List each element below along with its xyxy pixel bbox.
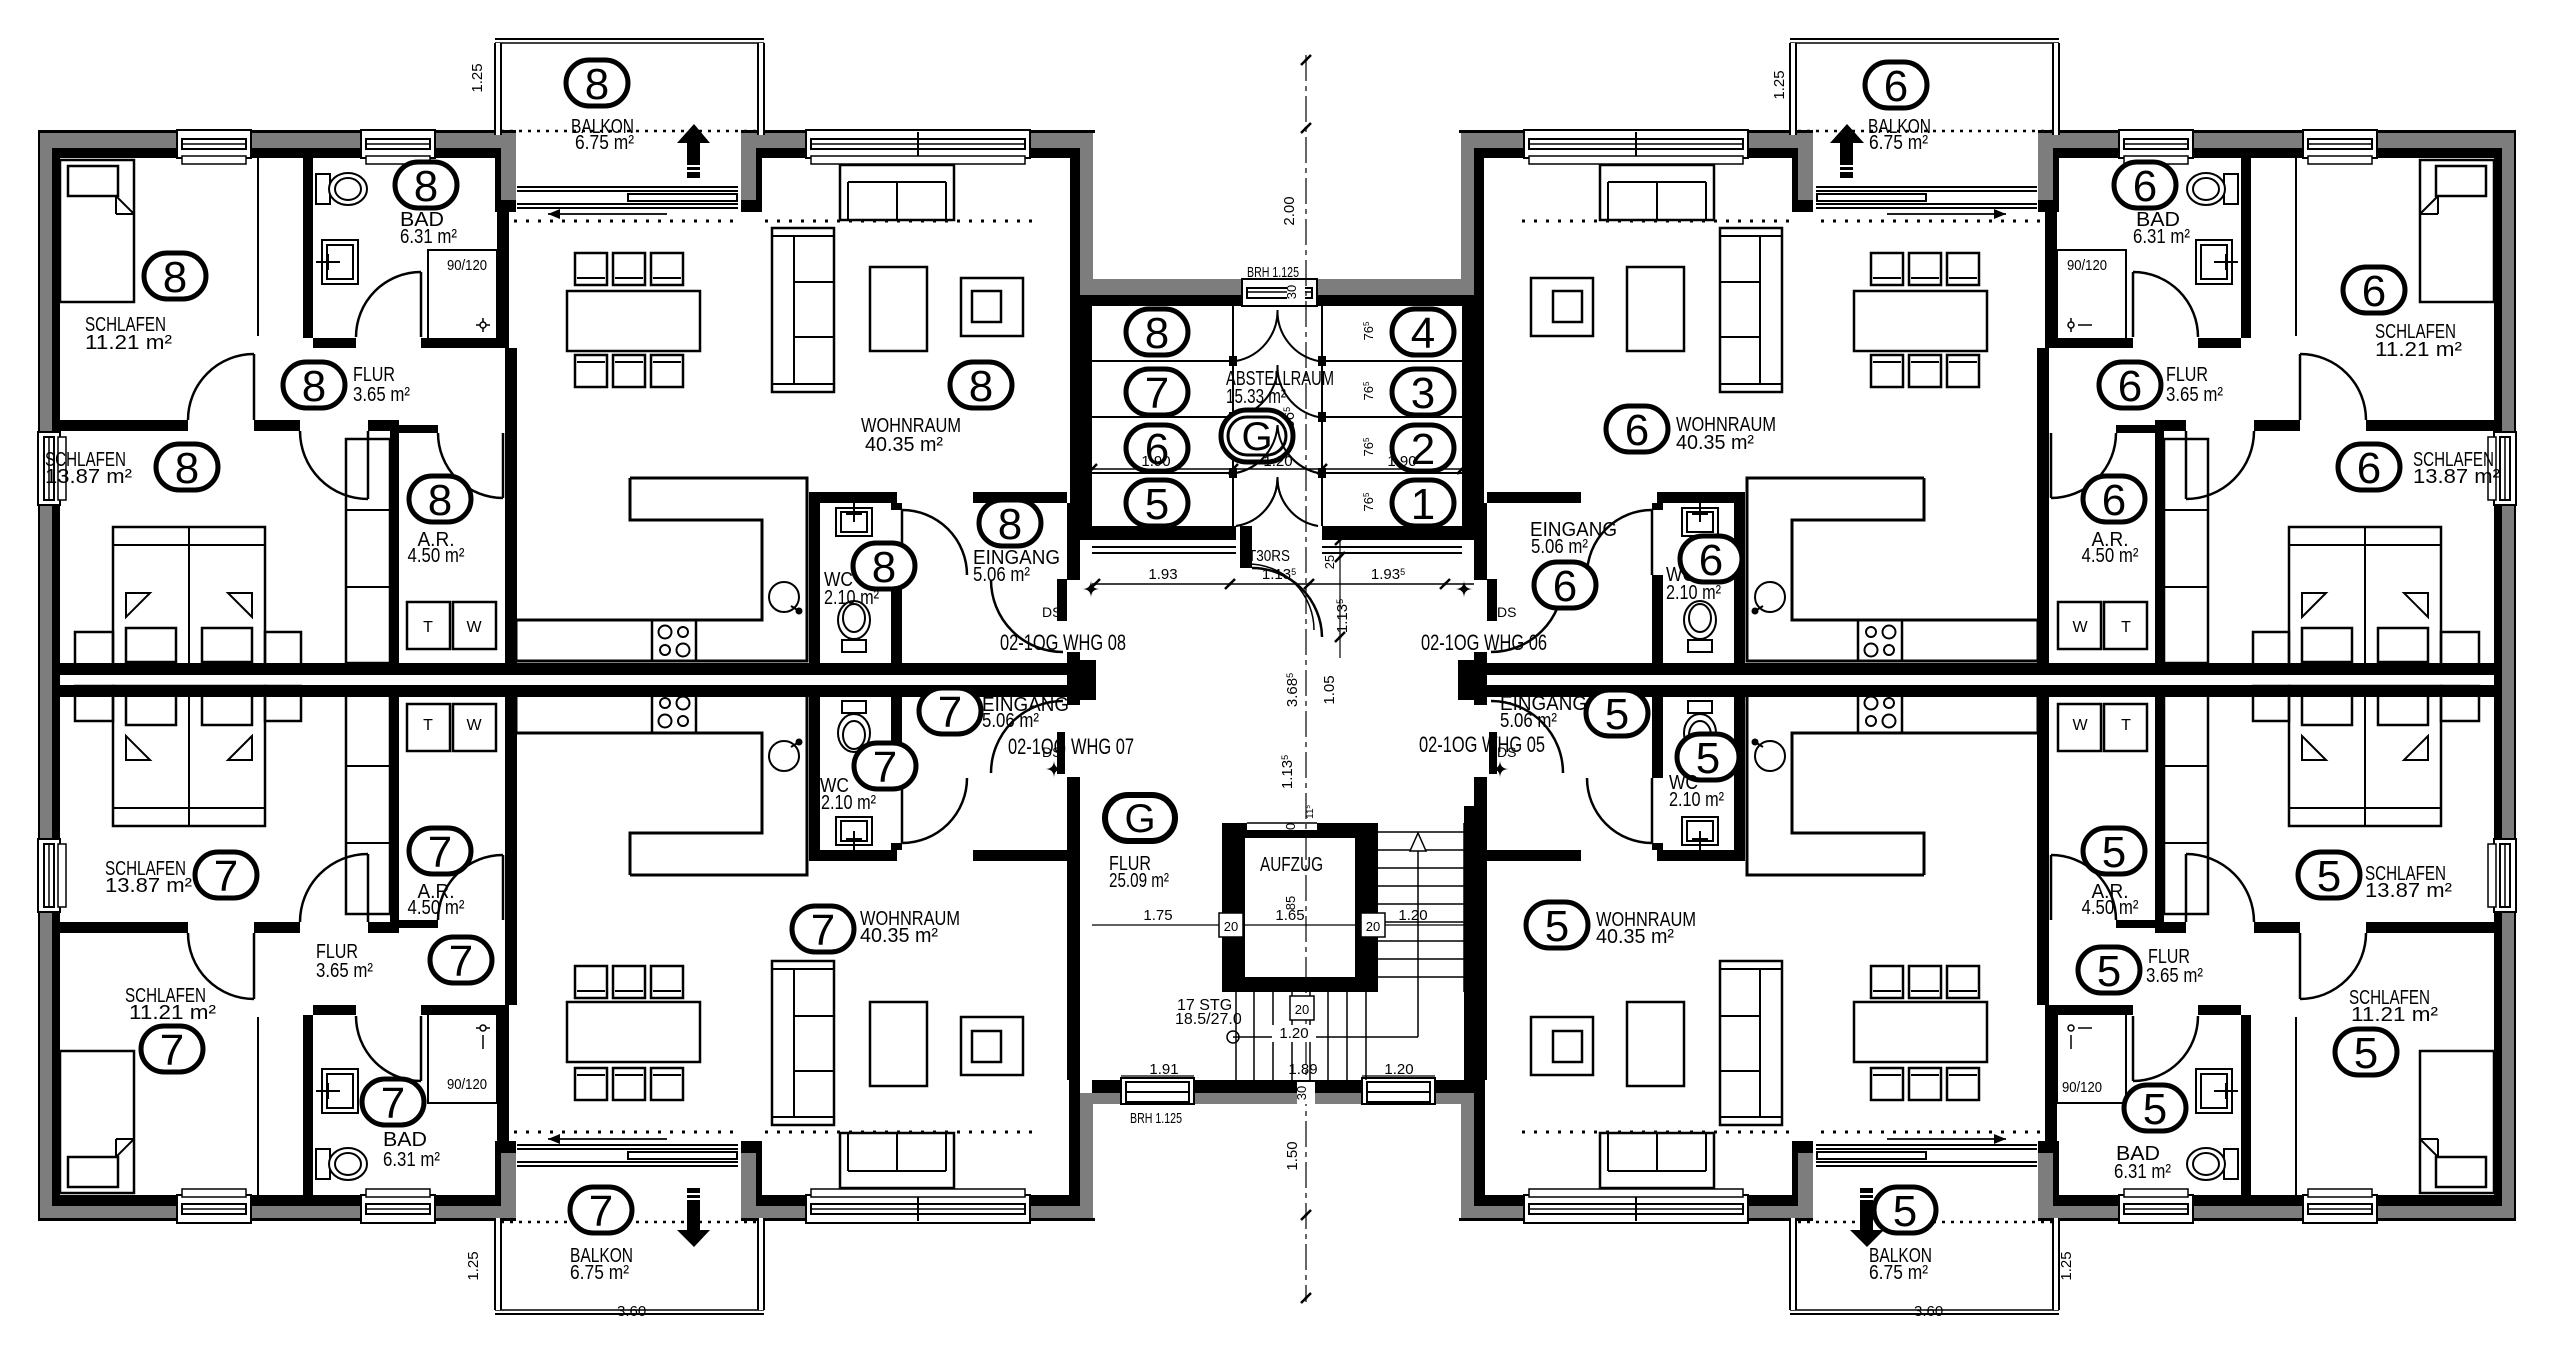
svg-text:8: 8 <box>969 362 993 411</box>
svg-text:8: 8 <box>302 362 326 411</box>
svg-text:11.21 m²: 11.21 m² <box>2351 1004 2438 1026</box>
svg-text:3.65 m²: 3.65 m² <box>2146 965 2203 987</box>
svg-text:6: 6 <box>1699 536 1723 585</box>
svg-text:40.35 m²: 40.35 m² <box>1596 926 1674 948</box>
svg-text:6.75 m²: 6.75 m² <box>1869 132 1928 154</box>
svg-text:5: 5 <box>1605 690 1629 739</box>
svg-text:40.35 m²: 40.35 m² <box>865 434 943 456</box>
svg-text:90/120: 90/120 <box>2062 1079 2102 1096</box>
svg-text:DS: DS <box>1042 744 1061 760</box>
svg-text:1.25: 1.25 <box>1771 70 1788 99</box>
svg-text:G: G <box>1124 797 1155 841</box>
svg-text:7: 7 <box>873 743 897 792</box>
svg-text:6: 6 <box>2133 162 2157 211</box>
svg-text:5.06 m²: 5.06 m² <box>1500 710 1557 732</box>
svg-text:1.935: 1.935 <box>1371 566 1405 583</box>
svg-text:1.135: 1.135 <box>1262 566 1296 583</box>
svg-text:8: 8 <box>428 476 452 525</box>
svg-text:DS: DS <box>1497 604 1516 620</box>
svg-text:1.89: 1.89 <box>1288 1061 1317 1078</box>
svg-text:8: 8 <box>872 543 896 592</box>
svg-text:W: W <box>466 717 482 734</box>
svg-text:1.90: 1.90 <box>1141 453 1170 470</box>
svg-text:8: 8 <box>163 253 187 302</box>
svg-text:FLUR: FLUR <box>2166 364 2208 386</box>
svg-text:02-1OG WHG 06: 02-1OG WHG 06 <box>1421 630 1547 655</box>
svg-text:13.87 m²: 13.87 m² <box>105 875 192 897</box>
svg-text:7: 7 <box>589 1187 613 1236</box>
svg-text:W: W <box>2072 717 2088 734</box>
svg-text:25: 25 <box>1322 555 1337 569</box>
svg-text:T: T <box>423 619 433 636</box>
svg-text:6.31 m²: 6.31 m² <box>2114 1161 2171 1183</box>
svg-text:W: W <box>466 619 482 636</box>
svg-text:8: 8 <box>414 162 438 211</box>
svg-text:7: 7 <box>428 828 452 877</box>
svg-text:4.50 m²: 4.50 m² <box>408 897 465 919</box>
svg-text:3.60: 3.60 <box>1914 1303 1943 1320</box>
svg-text:11.21 m²: 11.21 m² <box>129 1002 216 1024</box>
svg-text:T: T <box>2121 717 2131 734</box>
svg-text:02-1OG WHG 05: 02-1OG WHG 05 <box>1419 732 1545 757</box>
svg-text:20: 20 <box>1366 919 1380 934</box>
svg-text:7: 7 <box>938 688 962 737</box>
svg-text:3.60: 3.60 <box>617 1303 646 1320</box>
svg-text:T: T <box>423 717 433 734</box>
svg-text:BAD: BAD <box>383 1129 427 1151</box>
svg-text:4.50 m²: 4.50 m² <box>2082 897 2139 919</box>
svg-text:1.50: 1.50 <box>1284 1141 1301 1170</box>
svg-text:6: 6 <box>1884 62 1908 111</box>
svg-text:3.65 m²: 3.65 m² <box>353 384 410 406</box>
svg-text:1.65: 1.65 <box>1275 907 1304 924</box>
svg-text:6: 6 <box>2102 476 2126 525</box>
svg-text:7: 7 <box>381 1079 405 1128</box>
svg-text:30: 30 <box>1294 1086 1309 1100</box>
svg-text:1.135: 1.135 <box>1334 599 1351 633</box>
svg-text:5: 5 <box>2317 852 2341 901</box>
svg-text:5: 5 <box>2102 828 2126 877</box>
svg-text:DS: DS <box>1042 604 1061 620</box>
svg-text:6.31 m²: 6.31 m² <box>400 226 457 248</box>
svg-text:6.75 m²: 6.75 m² <box>575 132 634 154</box>
svg-text:40.35 m²: 40.35 m² <box>1676 432 1754 454</box>
svg-text:2.10 m²: 2.10 m² <box>1666 582 1721 604</box>
svg-text:2.10 m²: 2.10 m² <box>1669 789 1724 811</box>
svg-text:5: 5 <box>2143 1085 2167 1134</box>
svg-text:2.00: 2.00 <box>1281 196 1298 225</box>
svg-text:7: 7 <box>160 1026 184 1075</box>
svg-text:8: 8 <box>1145 309 1169 358</box>
svg-text:5: 5 <box>1545 902 1569 951</box>
svg-text:1.25: 1.25 <box>2058 1251 2075 1280</box>
svg-text:6.75 m²: 6.75 m² <box>1869 1262 1928 1284</box>
svg-text:T: T <box>2121 619 2131 636</box>
svg-text:8: 8 <box>998 500 1022 549</box>
svg-text:6: 6 <box>2118 362 2142 411</box>
svg-text:30: 30 <box>1284 285 1299 299</box>
svg-text:3.685: 3.685 <box>1284 673 1301 707</box>
svg-text:1.25: 1.25 <box>469 63 486 92</box>
svg-text:1.135: 1.135 <box>1279 755 1296 789</box>
svg-text:02-1OG WHG 07: 02-1OG WHG 07 <box>1008 734 1134 759</box>
svg-text:4: 4 <box>1411 309 1435 358</box>
svg-text:6: 6 <box>1625 406 1649 455</box>
svg-text:02-1OG WHG 08: 02-1OG WHG 08 <box>1000 630 1126 655</box>
svg-text:40.35 m²: 40.35 m² <box>860 925 938 947</box>
svg-text:20: 20 <box>1224 919 1238 934</box>
svg-text:DS: DS <box>1497 744 1516 760</box>
svg-text:13.87 m²: 13.87 m² <box>2413 466 2500 488</box>
svg-text:7: 7 <box>811 906 835 955</box>
svg-text:6.75 m²: 6.75 m² <box>570 1262 629 1284</box>
svg-text:13.87 m²: 13.87 m² <box>2365 880 2452 902</box>
svg-text:1.75: 1.75 <box>1143 907 1172 924</box>
svg-text:1.20: 1.20 <box>1279 1025 1308 1042</box>
svg-text:BRH 1.125: BRH 1.125 <box>1130 1110 1182 1127</box>
svg-text:8: 8 <box>175 444 199 493</box>
svg-text:1: 1 <box>1411 480 1435 529</box>
svg-text:AUFZUG: AUFZUG <box>1260 854 1323 876</box>
svg-text:6: 6 <box>2362 267 2386 316</box>
svg-text:15.33 m²: 15.33 m² <box>1226 386 1286 408</box>
svg-text:90/120: 90/120 <box>2067 257 2107 274</box>
svg-text:5.06 m²: 5.06 m² <box>1531 536 1588 558</box>
svg-text:1.20: 1.20 <box>1398 907 1427 924</box>
svg-text:5: 5 <box>2354 1029 2378 1078</box>
svg-text:90/120: 90/120 <box>447 257 487 274</box>
svg-text:90/120: 90/120 <box>447 1076 487 1093</box>
svg-text:5.06 m²: 5.06 m² <box>973 564 1030 586</box>
svg-text:6.31 m²: 6.31 m² <box>2133 226 2190 248</box>
svg-text:4.50 m²: 4.50 m² <box>2082 545 2139 567</box>
svg-text:1.93: 1.93 <box>1148 566 1177 583</box>
svg-text:FLUR: FLUR <box>353 364 395 386</box>
svg-text:5.06 m²: 5.06 m² <box>982 710 1039 732</box>
svg-text:8: 8 <box>585 60 609 109</box>
svg-text:3: 3 <box>1411 369 1435 418</box>
svg-text:1.90: 1.90 <box>1387 453 1416 470</box>
svg-text:5: 5 <box>1145 480 1169 529</box>
svg-text:7: 7 <box>1145 369 1169 418</box>
svg-text:1.25: 1.25 <box>465 1251 482 1280</box>
svg-text:5: 5 <box>1893 1187 1917 1236</box>
svg-text:7: 7 <box>449 937 473 986</box>
svg-text:11.21 m²: 11.21 m² <box>2375 339 2462 361</box>
svg-text:3.65 m²: 3.65 m² <box>2166 384 2223 406</box>
svg-text:T30RS: T30RS <box>1248 548 1290 565</box>
svg-text:6.31 m²: 6.31 m² <box>383 1149 440 1171</box>
svg-text:13.87 m²: 13.87 m² <box>45 466 132 488</box>
svg-text:20: 20 <box>1283 823 1298 837</box>
svg-text:11.21 m²: 11.21 m² <box>85 332 172 354</box>
svg-text:20: 20 <box>1295 1002 1309 1017</box>
svg-text:7: 7 <box>214 852 238 901</box>
svg-text:4.50 m²: 4.50 m² <box>408 545 465 567</box>
svg-text:5: 5 <box>2097 947 2121 996</box>
svg-text:6: 6 <box>1553 562 1577 611</box>
svg-text:5: 5 <box>1696 734 1720 783</box>
svg-text:25.09 m²: 25.09 m² <box>1109 870 1169 892</box>
svg-text:W: W <box>2072 619 2088 636</box>
svg-text:1.05: 1.05 <box>1321 675 1338 704</box>
svg-text:18.5/27.0: 18.5/27.0 <box>1175 1011 1242 1028</box>
svg-text:2.10 m²: 2.10 m² <box>821 792 876 814</box>
svg-text:6: 6 <box>2357 444 2381 493</box>
svg-text:BRH 1.125: BRH 1.125 <box>1247 264 1299 281</box>
svg-text:3.65 m²: 3.65 m² <box>316 960 373 982</box>
